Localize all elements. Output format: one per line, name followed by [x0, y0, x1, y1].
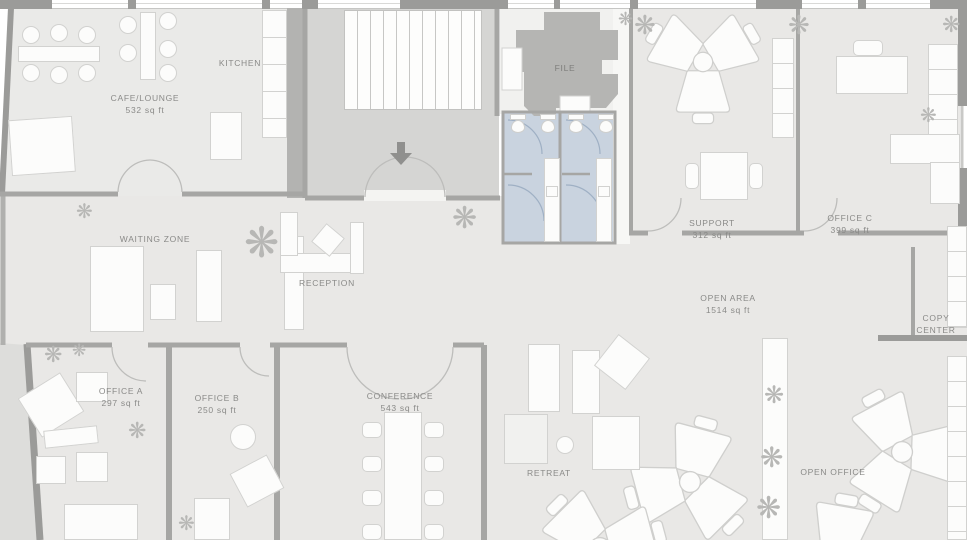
plant-icon: ❋	[44, 344, 62, 366]
bathroom-sink	[546, 186, 558, 197]
cafe-chair	[119, 16, 137, 34]
room-label-retreat: RETREAT	[504, 467, 594, 479]
cafe-chair	[22, 26, 40, 44]
waiting-table	[150, 284, 176, 320]
room-name: OPEN OFFICE	[778, 466, 888, 478]
retreat-pouf	[556, 436, 574, 454]
wall-segment	[0, 0, 52, 9]
open-office-cabinet	[947, 356, 967, 540]
wall-segment	[554, 0, 560, 9]
plant-icon: ❋	[128, 420, 146, 442]
conference-table	[384, 412, 422, 540]
office-b-desk	[194, 498, 230, 540]
room-name: WAITING ZONE	[95, 233, 215, 245]
room-area: 399 sq ft	[800, 224, 900, 236]
plant-icon: ❋	[178, 514, 195, 534]
wall-segment	[858, 0, 866, 9]
cafe-chair	[50, 24, 68, 42]
waiting-sofa	[90, 246, 144, 332]
room-label-conference: CONFERENCE 543 sq ft	[345, 390, 455, 415]
room-label-waiting-zone: WAITING ZONE	[95, 233, 215, 245]
retreat-sofa	[528, 344, 560, 412]
cafe-chair	[50, 66, 68, 84]
wall-exterior-left-top	[2, 8, 11, 194]
room-label-open-area: OPEN AREA 1514 sq ft	[673, 292, 783, 317]
conference-chair	[424, 524, 444, 540]
support-cabinet	[772, 38, 794, 138]
room-label-kitchen: KITCHEN	[195, 57, 285, 69]
room-label-office-c: OFFICE C 399 sq ft	[800, 212, 900, 237]
toilet	[569, 120, 583, 133]
room-name: OPEN AREA	[673, 292, 783, 304]
room-label-file: FILE	[535, 62, 595, 74]
cafe-table	[18, 46, 100, 62]
retreat-rug	[504, 414, 548, 464]
stairwell	[344, 10, 482, 110]
room-label-copy-center: COPY CENTER	[911, 312, 961, 337]
cafe-chair	[159, 64, 177, 82]
conference-chair	[362, 456, 382, 472]
room-area: 543 sq ft	[345, 402, 455, 414]
wall-segment	[630, 0, 638, 9]
reception-desk-return	[280, 212, 298, 256]
wall-segment	[262, 0, 270, 9]
room-name: FILE	[535, 62, 595, 74]
office-c-chair	[853, 40, 883, 56]
cafe-chair	[78, 26, 96, 44]
office-c-desk	[836, 56, 908, 94]
support-chair	[749, 163, 763, 189]
room-name: SUPPORT	[662, 217, 762, 229]
conference-chair	[362, 490, 382, 506]
retreat-sofa	[592, 416, 640, 470]
room-name: CAFE/LOUNGE	[80, 92, 210, 104]
plant-icon: ❋	[76, 202, 93, 222]
toilet	[599, 120, 613, 133]
door-arc-office-b	[240, 347, 269, 376]
plant-icon: ❋	[920, 106, 937, 126]
cafe-chair	[22, 64, 40, 82]
plant-icon: ❋	[244, 222, 279, 264]
plant-icon: ❋	[72, 342, 86, 359]
room-area: 312 sq ft	[662, 229, 762, 241]
door-arc-office-a	[112, 347, 146, 381]
plant-icon: ❋	[452, 204, 477, 234]
room-label-support: SUPPORT 312 sq ft	[662, 217, 762, 242]
wall-segment	[930, 0, 967, 9]
room-label-cafe-lounge: CAFE/LOUNGE 532 sq ft	[80, 92, 210, 117]
wall-segment	[756, 0, 802, 9]
plant-icon: ❋	[942, 14, 960, 36]
conference-chair	[424, 456, 444, 472]
room-name: CONFERENCE	[345, 390, 455, 402]
room-name: RECEPTION	[277, 277, 377, 289]
kitchen-island	[210, 112, 242, 160]
cafe-chair	[159, 12, 177, 30]
office-a-chair	[36, 456, 66, 484]
wall-segment	[400, 0, 508, 9]
floor-plan: ❋ ❋ ❋ ❋ ❋ ❋ ❋ ❋ ❋ ❋ ❋ ❋ ❋ ❋ ❋ CAFE/LOUNG…	[0, 0, 967, 540]
plant-icon: ❋	[756, 494, 781, 524]
walls-doors-overlay	[0, 0, 967, 540]
waiting-sofa	[196, 250, 222, 322]
toilet	[511, 120, 525, 133]
conference-chair	[424, 490, 444, 506]
room-name: COPY CENTER	[911, 312, 961, 337]
cafe-sofa	[8, 116, 76, 176]
conference-chair	[362, 422, 382, 438]
office-c-sofa	[890, 134, 960, 164]
room-name: KITCHEN	[195, 57, 285, 69]
cafe-table-2	[140, 12, 156, 80]
wall-segment	[128, 0, 136, 9]
office-b-chair	[230, 424, 256, 450]
room-area: 1514 sq ft	[673, 304, 783, 316]
bathroom-sink-counter	[544, 158, 560, 242]
wall-kitchen-stair	[287, 8, 305, 198]
door-arc-cafe-left	[118, 160, 150, 192]
room-name: RETREAT	[504, 467, 594, 479]
bathroom-sink	[598, 186, 610, 197]
room-area: 297 sq ft	[76, 397, 166, 409]
wall-segment	[302, 0, 318, 9]
support-chair	[685, 163, 699, 189]
entry-arrow-icon	[390, 142, 412, 166]
office-a-desk	[64, 504, 138, 540]
bathroom-sink-counter	[596, 158, 612, 242]
plant-icon: ❋	[788, 12, 810, 38]
room-label-open-office: OPEN OFFICE	[778, 466, 888, 478]
room-area: 532 sq ft	[80, 104, 210, 116]
door-arc-bath3	[508, 185, 544, 221]
kitchen-counter	[262, 10, 287, 138]
plant-icon: ❋	[764, 384, 784, 408]
room-label-office-a: OFFICE A 297 sq ft	[76, 385, 166, 410]
conference-chair	[424, 422, 444, 438]
plant-icon: ❋	[618, 10, 633, 28]
support-table	[700, 152, 748, 200]
reception-cabinet	[350, 222, 364, 274]
cafe-chair	[78, 64, 96, 82]
office-a-chair	[76, 452, 108, 482]
toilet	[541, 120, 555, 133]
plant-icon: ❋	[634, 12, 656, 38]
office-c-sofa	[930, 162, 960, 204]
room-name: OFFICE B	[172, 392, 262, 404]
room-area: 250 sq ft	[172, 404, 262, 416]
wall-exterior-officeA	[27, 344, 40, 540]
room-label-reception: RECEPTION	[277, 277, 377, 289]
room-name: OFFICE C	[800, 212, 900, 224]
room-label-office-b: OFFICE B 250 sq ft	[172, 392, 262, 417]
room-name: OFFICE A	[76, 385, 166, 397]
conference-chair	[362, 524, 382, 540]
cafe-chair	[119, 44, 137, 62]
retreat-sofa	[572, 350, 600, 414]
door-arc-cafe-right	[150, 160, 182, 192]
cafe-chair	[159, 40, 177, 58]
